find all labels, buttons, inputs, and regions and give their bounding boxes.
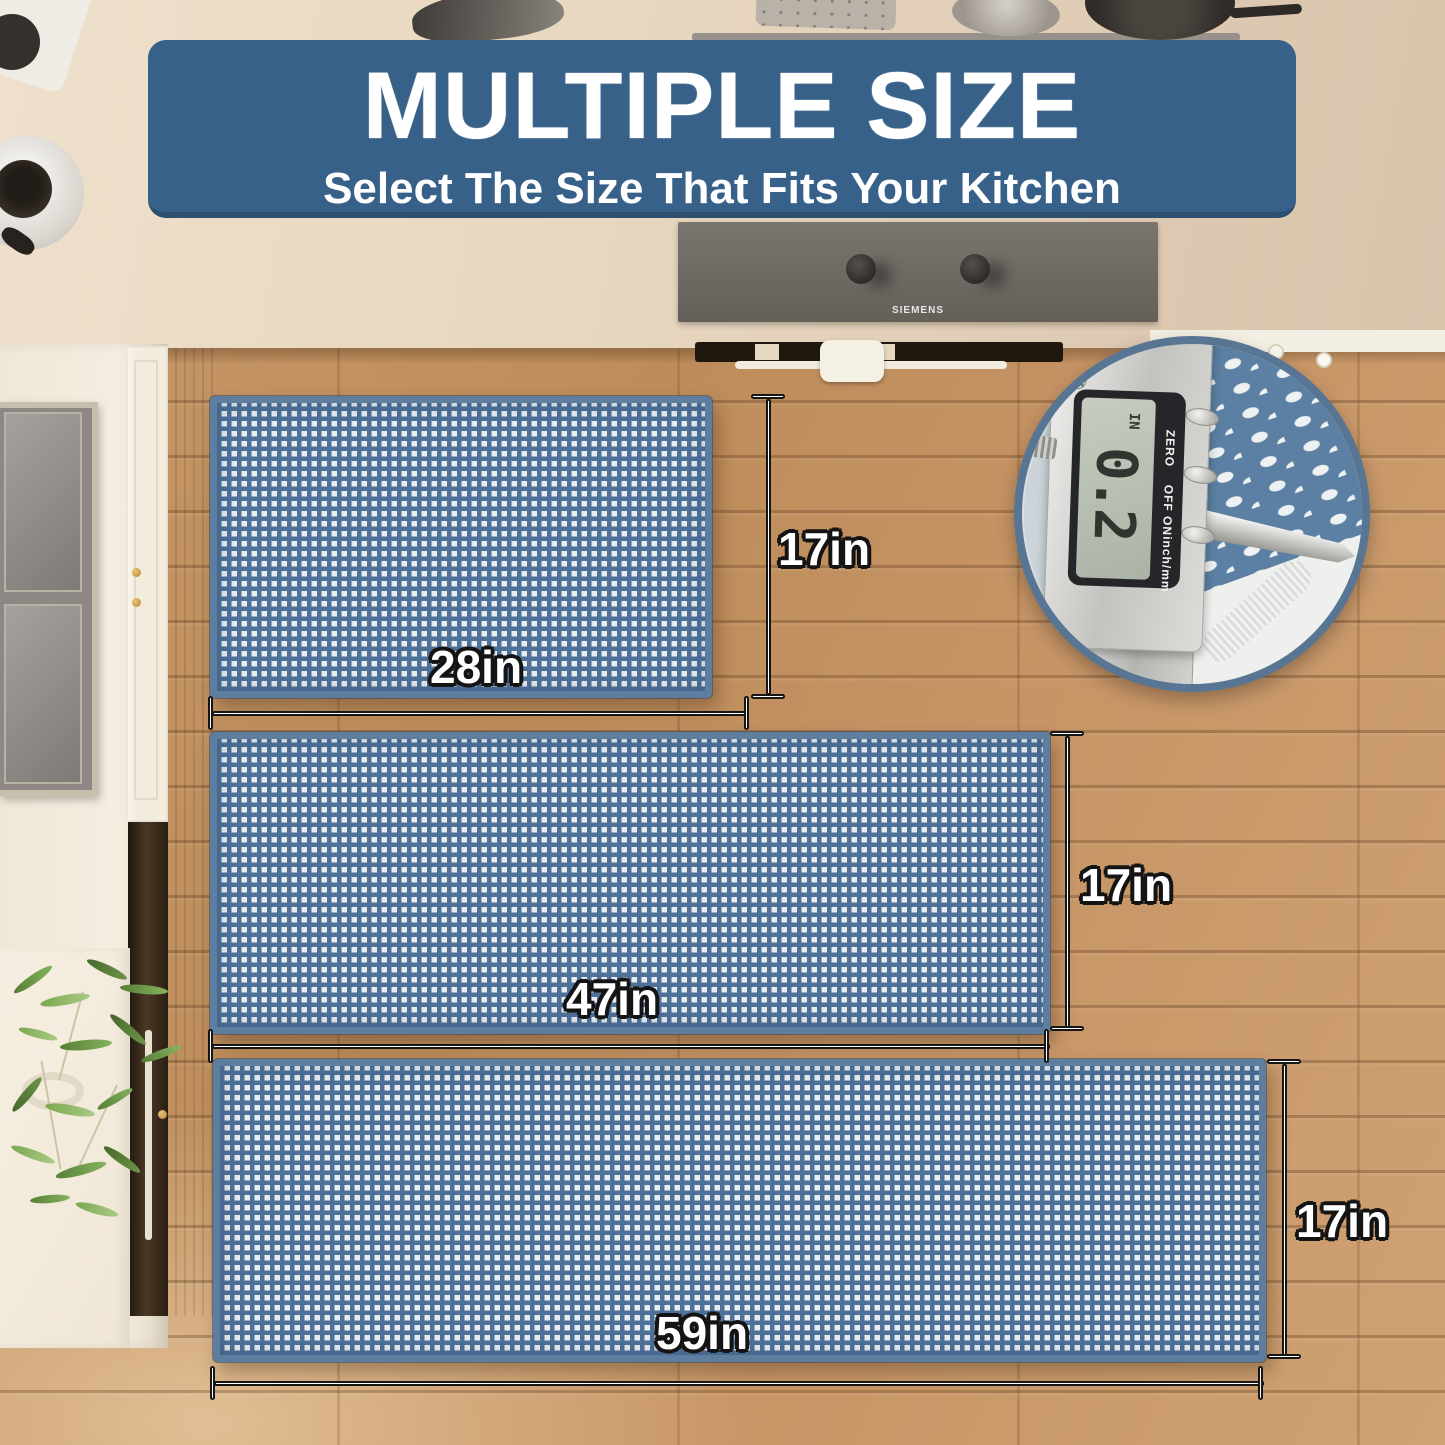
height-label-medium: 17in	[1080, 858, 1172, 912]
caliper-display: 0.2 IN ZERO OFF ON inch/mm	[1067, 389, 1186, 589]
arrow-end-cap	[210, 1366, 215, 1400]
steel-appliance	[0, 402, 98, 796]
appliance-panel	[4, 412, 82, 592]
banner-subtitle: Select The Size That Fits Your Kitchen	[148, 164, 1296, 214]
arrow-end-cap	[751, 394, 785, 399]
arrow-end-cap	[1050, 731, 1084, 736]
arrow-end-cap	[208, 1029, 213, 1063]
door-knob	[132, 598, 141, 607]
caliper-reading: 0.2	[1080, 442, 1148, 544]
banner-title: MULTIPLE SIZE	[148, 52, 1296, 161]
door-panel	[134, 360, 158, 800]
drawer-handle	[820, 340, 884, 382]
arrow-end-cap	[1050, 1026, 1084, 1031]
width-arrow-medium	[212, 1044, 1050, 1049]
vent-gap	[755, 344, 779, 360]
height-label-large: 17in	[1296, 1194, 1388, 1248]
stove-knob	[846, 254, 876, 284]
arrow-end-cap	[1267, 1354, 1301, 1359]
width-label-small: 28in	[430, 640, 522, 694]
caliper-unit: IN	[1125, 412, 1142, 429]
width-label-medium: 47in	[566, 972, 658, 1026]
arrow-end-cap	[1258, 1366, 1263, 1400]
stove-brand: SIEMENS	[678, 305, 1158, 316]
height-arrow-small	[766, 399, 771, 695]
metal-tray	[755, 0, 896, 30]
caliper-label-mode: inch/mm	[1155, 524, 1178, 605]
height-arrow-large	[1282, 1064, 1287, 1358]
caliper-screen: 0.2 IN	[1076, 397, 1156, 579]
width-label-large: 59in	[656, 1306, 748, 1360]
wood-floor-vertical-strip	[166, 348, 213, 1316]
width-arrow-large	[214, 1381, 1264, 1386]
height-arrow-medium	[1065, 736, 1070, 1028]
arrow-end-cap	[1044, 1029, 1049, 1063]
arrow-end-cap	[208, 696, 213, 730]
stove-front: SIEMENS	[678, 222, 1158, 322]
tall-cabinet-door	[126, 346, 168, 822]
kitchen-mat-size-infographic: SIEMENS 17in	[0, 0, 1445, 1445]
caliper-body: 0.2 IN ZERO OFF ON inch/mm	[1042, 336, 1213, 653]
arrow-end-cap	[1267, 1059, 1301, 1064]
stove-knob	[960, 254, 990, 284]
height-label-small: 17in	[778, 522, 870, 576]
door-knob	[132, 568, 141, 577]
screw-icon	[1068, 371, 1087, 390]
cabinet-knob	[158, 1110, 167, 1119]
appliance-panel	[4, 604, 82, 784]
caliper-thumb-screw	[1025, 434, 1058, 460]
size-banner: MULTIPLE SIZE Select The Size That Fits …	[148, 40, 1296, 218]
arrow-end-cap	[744, 696, 749, 730]
kettle-lid	[0, 160, 52, 218]
width-arrow-small	[212, 711, 748, 716]
walnut-cabinet-side	[128, 822, 168, 1316]
arrow-end-cap	[751, 694, 785, 699]
thickness-inset: 0.2 IN ZERO OFF ON inch/mm	[1014, 336, 1370, 692]
